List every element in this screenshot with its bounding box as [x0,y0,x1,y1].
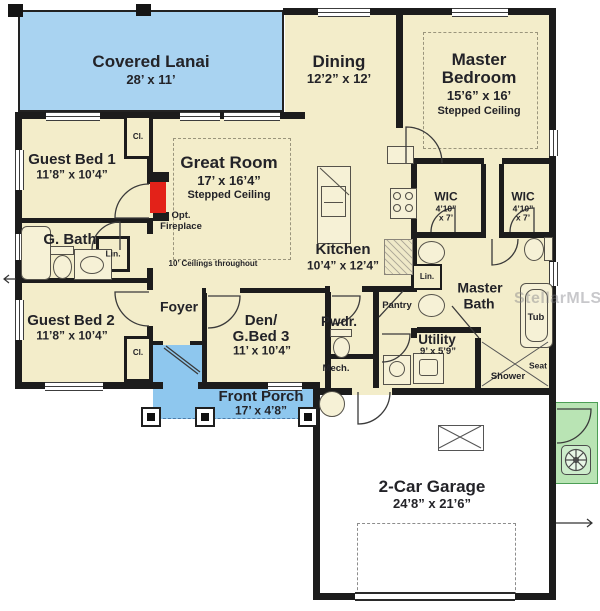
master-right-window [549,130,558,156]
den-name-1: Den/ [245,313,278,329]
gbath-sink [80,256,104,274]
den-name-2: G.Bed 3 [233,329,290,345]
bath-right-window [549,262,558,286]
guest-bed-1-dims: 11’8” x 10’4” [36,169,107,182]
kitchen-name: Kitchen [315,242,370,258]
mbath-toilet-bowl [524,238,544,261]
pantry-name: Pantry [382,301,412,311]
den-door-opening [206,288,240,293]
fireplace-label-2: Fireplace [160,222,202,232]
dining-dims: 12’2” x 12’ [307,72,371,86]
gb1-top-window [46,112,100,121]
lanai-name: Covered Lanai [92,53,209,71]
g-bath-name: G. Bath [43,232,96,248]
ac-unit [561,445,591,475]
greatroom-top-window [180,112,220,121]
wall-pwdr-pantry [373,288,379,388]
porch-column-3 [298,407,318,427]
front-porch-dims: 17’ x 4’8” [235,405,287,418]
seat-label: Seat [529,362,547,371]
wic-hall-opening-top [484,158,502,164]
mbath-toilet-tank [544,237,553,261]
dryer-door [419,359,438,376]
pwdr-door-opening [330,286,362,292]
washer-drum [389,361,405,377]
foyer-name: Foyer [160,300,198,315]
garage-apron-outline [357,523,516,595]
kitchen-dims: 10’4” x 12’4” [307,260,379,273]
guest-bed-1-name: Guest Bed 1 [28,152,116,168]
den-dims: 11’ x 10’4” [233,345,291,358]
guest-bed-2-dims: 11’8” x 10’4” [36,330,107,343]
great-room-note: Stepped Ceiling [187,190,270,202]
wall-wic1-right [481,163,486,233]
fireplace-label-1: Opt. [172,211,191,221]
shower-label: Shower [491,372,525,382]
master-bath-name-2: Bath [463,297,494,312]
wall-gb1-gbath [15,218,152,223]
wall-utility-shower [475,338,481,388]
mech-name: Mech. [323,364,350,374]
closet-gb2 [124,336,152,382]
lanai-post-1 [8,4,23,17]
master-bath-name-1: Master [457,281,502,296]
garage-dims: 24’8” x 21’6” [393,497,471,511]
linen-master-label: Lin. [420,273,434,281]
pwdr-toilet-bowl [333,337,350,358]
great-room-dims: 17’ x 16’4” [197,174,261,188]
fireplace-stub-top [147,172,169,182]
gb2-left-window [15,300,24,340]
garage-name: 2-Car Garage [379,478,486,496]
floor-plan: Covered Lanai 28’ x 11’ Dining 12’2” x 1… [0,0,600,611]
guest-bed-2-name: Guest Bed 2 [27,313,115,329]
gbath-toilet-bowl [53,255,72,279]
garage-door [355,592,515,601]
master-top-window [452,8,508,17]
right-arrow-icon [556,519,592,527]
wic1-name: WIC [434,191,457,204]
water-heater [319,391,345,417]
master-bedroom-dims: 15’6” x 16’ [447,89,511,103]
pwdr-toilet-tank [330,329,352,337]
closet-gb1-label: Cl. [133,133,143,141]
gb2-bottom-window [45,382,103,391]
front-porch-name: Front Porch [219,389,304,405]
kitchen-counter [384,239,413,275]
pwdr-name: Pwdr. [321,315,357,329]
lanai-post-2 [136,4,151,16]
stove [390,188,417,219]
wic1-dims-2: x 7’ [439,214,453,223]
gb1-left-window [15,150,24,190]
mbath-sink-1 [418,241,445,264]
linen-gbath-label: Lin. [105,250,120,259]
wic2-name: WIC [511,191,534,204]
dining-name: Dining [313,53,366,71]
gb2-door-opening [147,290,153,326]
watermark: StellarMLS [514,290,600,308]
wall-master-bottom [402,158,556,164]
lanai-dims: 28’ x 11’ [126,73,175,87]
tub-label: Tub [528,313,545,323]
utility-name: Utility [418,333,456,347]
ceiling-note: 10’ Ceilings throughout [169,260,258,268]
fireplace [150,182,166,213]
dining-window [318,8,370,17]
wic-hall-opening-bottom [486,232,499,238]
wall-foyer-den [202,288,207,385]
porch-column-1 [141,407,161,427]
utility-door-opening [379,327,411,333]
wall-garage-top [313,388,556,395]
wall-dining-master [396,8,403,128]
great-room-name: Great Room [180,154,277,172]
mbath-sink-2 [418,294,445,317]
refrigerator [387,146,414,164]
lanai-slider-door [224,112,280,121]
utility-dims: 9’ x 5’9” [420,347,456,357]
master-bedroom-name-2: Bedroom [442,69,517,87]
gbath-hall-opening [147,234,153,268]
island-sink [321,186,346,217]
wall-foyer-stub-right [190,341,204,345]
wall-wic2-left [499,163,504,233]
master-bedroom-note: Stepped Ceiling [437,106,520,118]
porch-column-2 [195,407,215,427]
wic2-dims-2: x 7’ [516,214,530,223]
closet-gb2-label: Cl. [133,349,143,357]
master-bedroom-name-1: Master [452,51,507,69]
garage-entry-opening [352,388,392,395]
attic-access [438,425,484,451]
wall-pwdr-mech [325,354,379,359]
